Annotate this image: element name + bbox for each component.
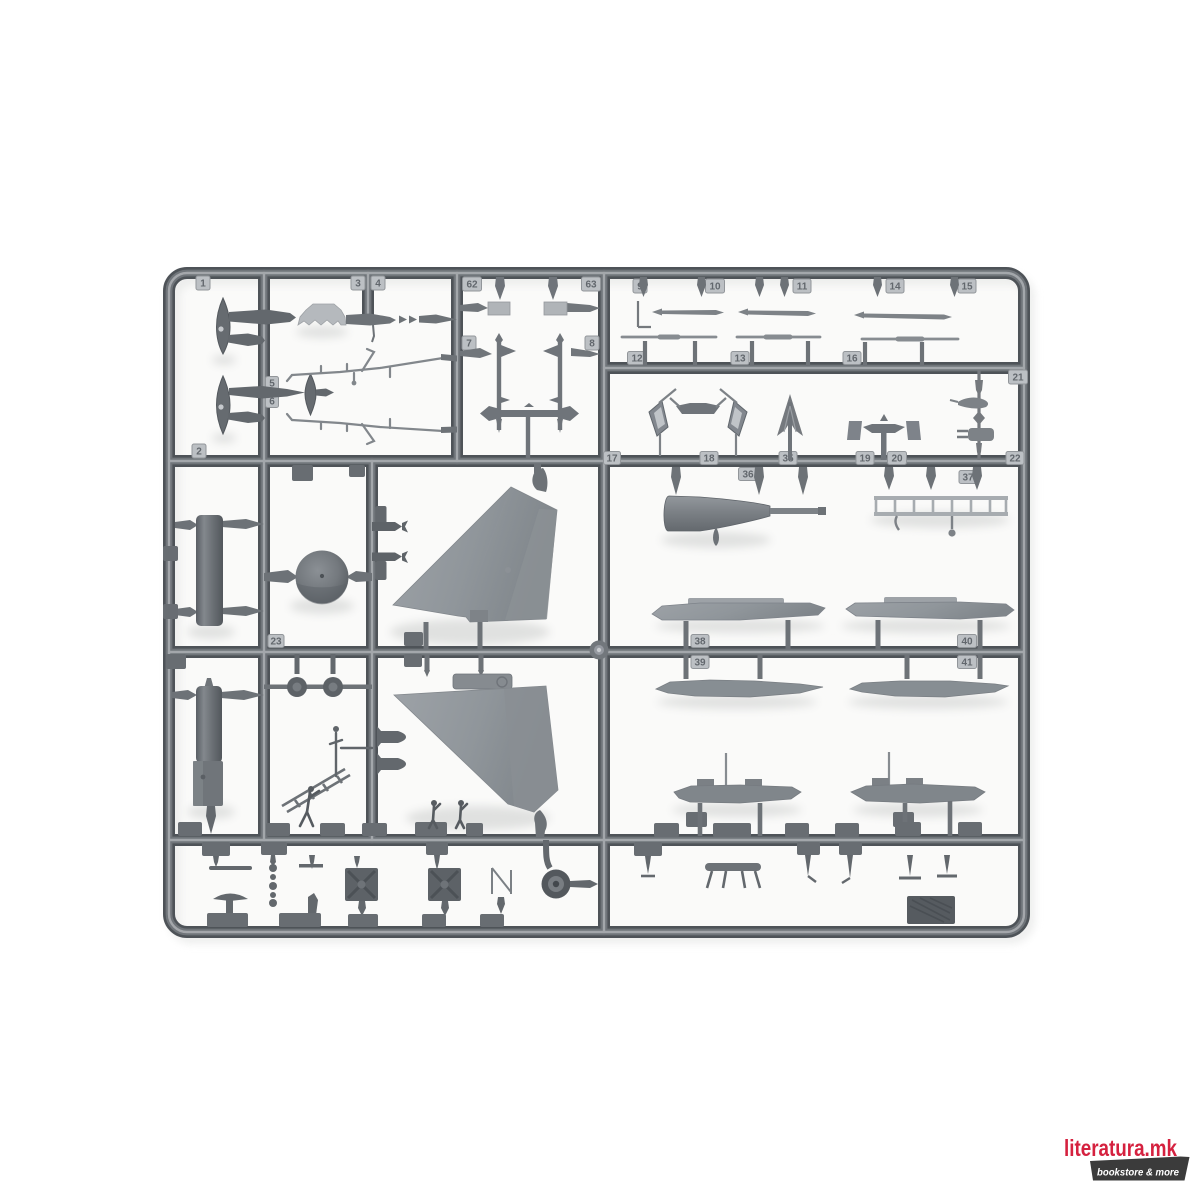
svg-text:18: 18 (703, 454, 715, 465)
svg-text:3: 3 (355, 279, 361, 290)
svg-text:11: 11 (797, 282, 808, 293)
svg-text:23: 23 (270, 637, 282, 648)
svg-text:40: 40 (961, 637, 973, 648)
svg-text:literatura.mk: literatura.mk (1064, 1135, 1178, 1161)
svg-text:4: 4 (375, 279, 381, 290)
svg-text:62: 62 (466, 280, 478, 291)
svg-text:2: 2 (196, 447, 202, 458)
svg-text:10: 10 (709, 282, 721, 293)
svg-text:16: 16 (846, 354, 858, 365)
svg-text:8: 8 (589, 339, 595, 350)
svg-text:15: 15 (961, 282, 973, 293)
svg-text:12: 12 (631, 354, 643, 365)
svg-text:22: 22 (1009, 454, 1021, 465)
svg-text:bookstore & more: bookstore & more (1097, 1167, 1179, 1179)
svg-text:63: 63 (585, 280, 597, 291)
svg-text:39: 39 (694, 658, 706, 669)
svg-text:20: 20 (891, 454, 903, 465)
svg-text:13: 13 (734, 354, 746, 365)
svg-text:7: 7 (466, 339, 472, 350)
svg-text:6: 6 (269, 397, 275, 408)
svg-text:38: 38 (694, 637, 706, 648)
svg-text:1: 1 (200, 279, 206, 290)
svg-text:17: 17 (606, 454, 618, 465)
svg-text:41: 41 (961, 658, 973, 669)
svg-text:14: 14 (889, 282, 901, 293)
svg-text:36: 36 (742, 470, 754, 481)
svg-text:19: 19 (859, 454, 871, 465)
svg-text:21: 21 (1012, 373, 1024, 384)
